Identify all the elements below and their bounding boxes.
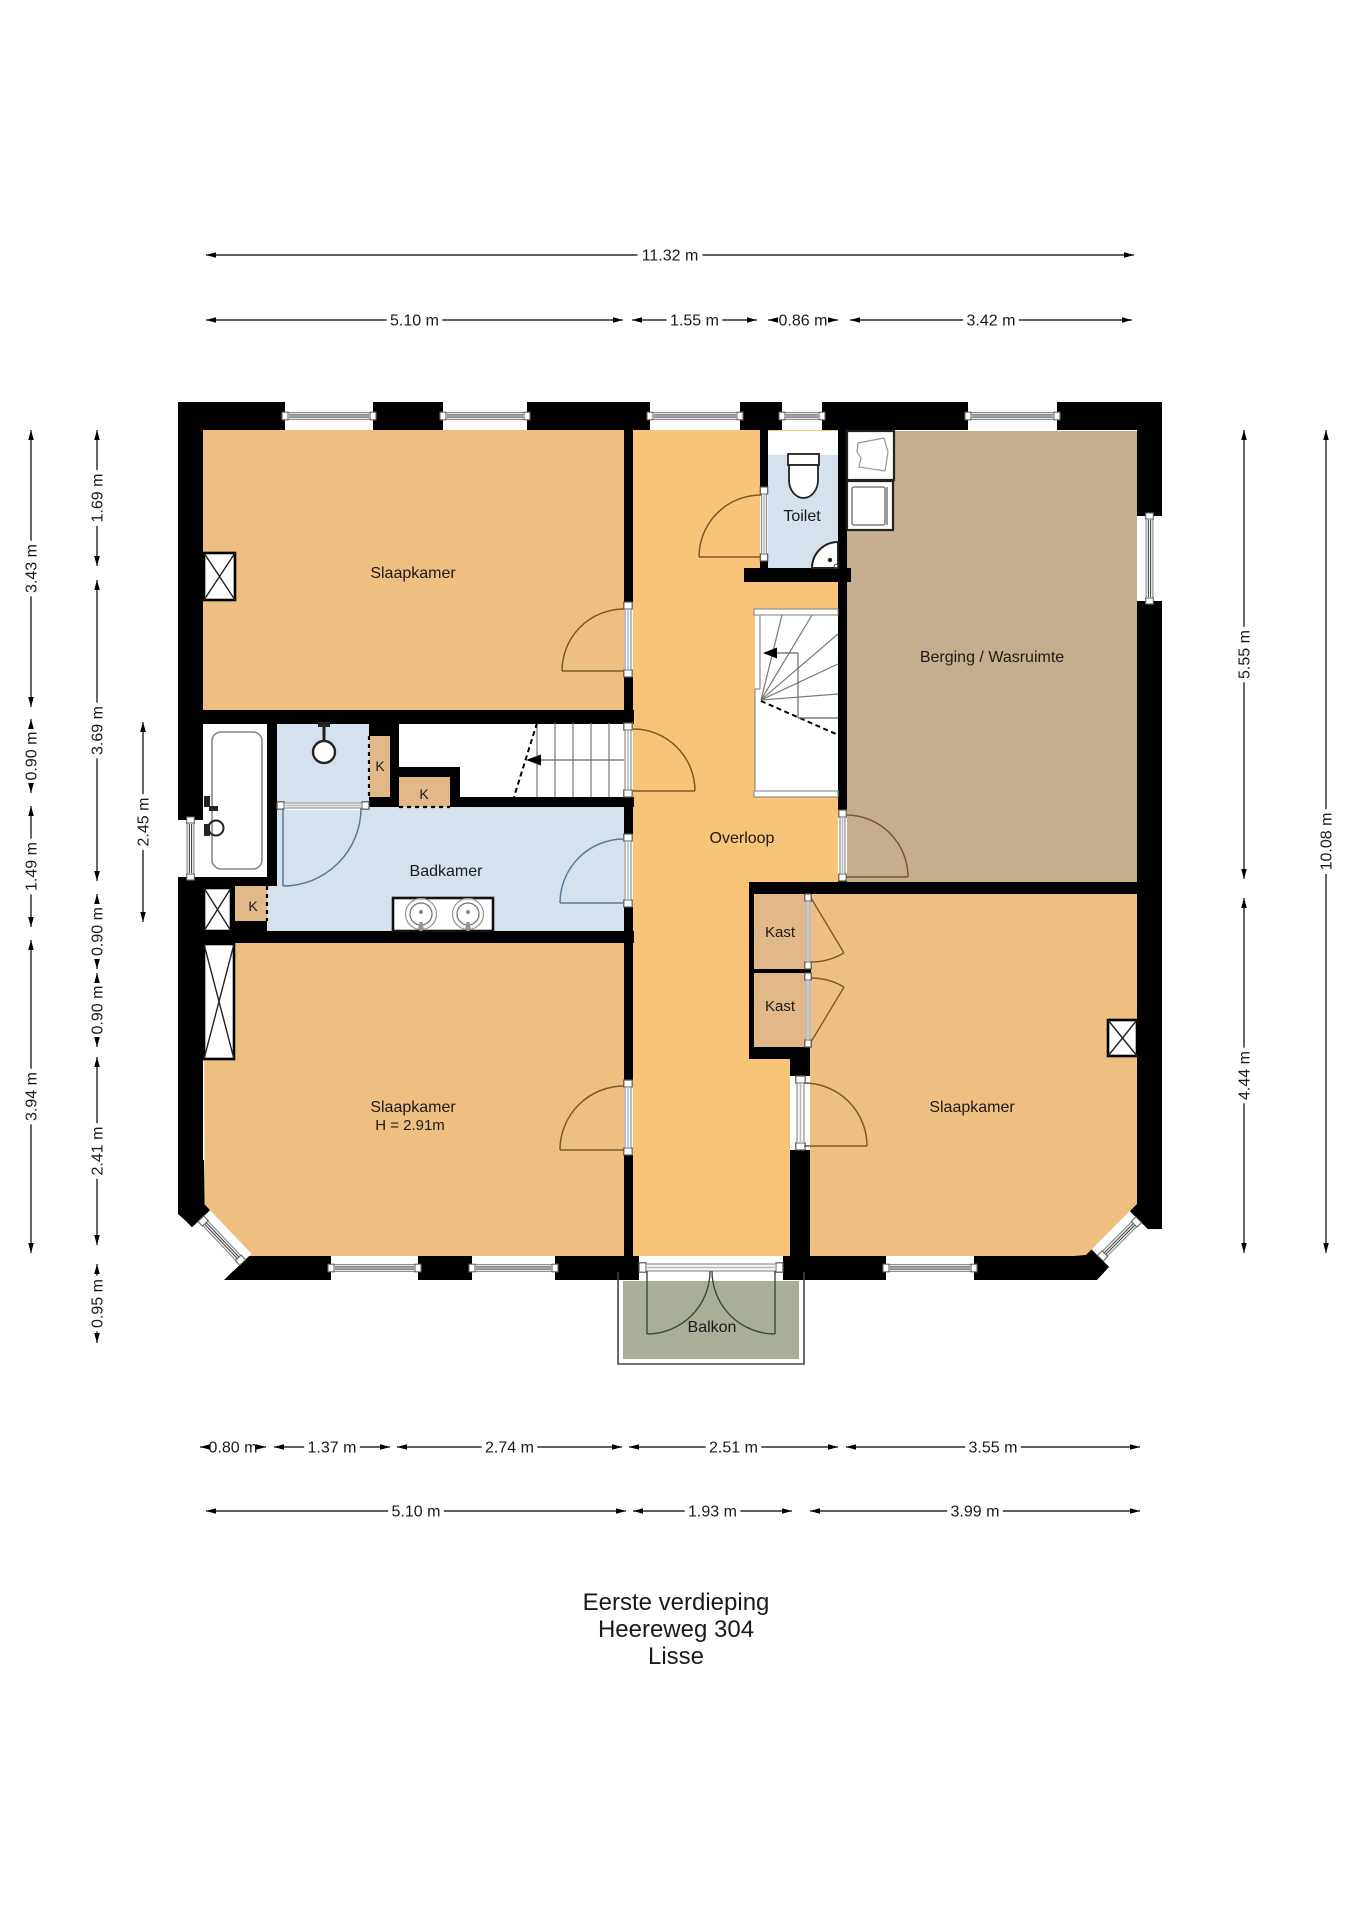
- svg-text:H = 2.91m: H = 2.91m: [375, 1117, 445, 1134]
- svg-text:2.74 m: 2.74 m: [485, 1440, 534, 1457]
- svg-text:Eerste verdieping: Eerste verdieping: [583, 1589, 770, 1616]
- svg-text:Lisse: Lisse: [648, 1643, 704, 1670]
- svg-text:3.43 m: 3.43 m: [24, 544, 41, 593]
- svg-text:2.41 m: 2.41 m: [90, 1127, 107, 1176]
- svg-text:5.10 m: 5.10 m: [390, 313, 439, 330]
- svg-text:K: K: [419, 786, 429, 802]
- svg-text:Balkon: Balkon: [688, 1319, 737, 1336]
- svg-text:0.80 m: 0.80 m: [209, 1440, 258, 1457]
- svg-text:Slaapkamer: Slaapkamer: [929, 1099, 1015, 1116]
- svg-text:1.93 m: 1.93 m: [688, 1504, 737, 1521]
- svg-text:Badkamer: Badkamer: [410, 863, 484, 880]
- svg-text:0.90 m: 0.90 m: [24, 732, 41, 781]
- svg-text:10.08 m: 10.08 m: [1319, 813, 1336, 871]
- svg-text:2.51 m: 2.51 m: [709, 1440, 758, 1457]
- svg-text:3.42 m: 3.42 m: [967, 313, 1016, 330]
- svg-text:5.10 m: 5.10 m: [392, 1504, 441, 1521]
- svg-text:4.44 m: 4.44 m: [1237, 1051, 1254, 1100]
- svg-text:11.32 m: 11.32 m: [642, 248, 699, 265]
- svg-text:Berging / Wasruimte: Berging / Wasruimte: [920, 649, 1064, 666]
- svg-text:0.90 m: 0.90 m: [90, 907, 107, 956]
- svg-text:K: K: [375, 758, 385, 774]
- svg-text:Toilet: Toilet: [783, 508, 821, 525]
- svg-text:0.90 m: 0.90 m: [90, 986, 107, 1035]
- svg-text:1.55 m: 1.55 m: [670, 313, 719, 330]
- svg-text:3.94 m: 3.94 m: [24, 1072, 41, 1121]
- svg-text:0.95 m: 0.95 m: [90, 1279, 107, 1328]
- svg-text:3.55 m: 3.55 m: [969, 1440, 1018, 1457]
- svg-text:0.86 m: 0.86 m: [779, 313, 828, 330]
- svg-text:3.99 m: 3.99 m: [951, 1504, 1000, 1521]
- svg-text:Slaapkamer: Slaapkamer: [370, 1099, 456, 1116]
- svg-text:5.55 m: 5.55 m: [1237, 630, 1254, 679]
- svg-text:1.37 m: 1.37 m: [308, 1440, 357, 1457]
- svg-text:Slaapkamer: Slaapkamer: [370, 565, 456, 582]
- svg-text:1.49 m: 1.49 m: [24, 842, 41, 891]
- svg-text:Overloop: Overloop: [710, 830, 775, 847]
- svg-text:Kast: Kast: [765, 924, 796, 941]
- svg-text:2.45 m: 2.45 m: [136, 798, 153, 847]
- svg-text:K: K: [248, 898, 258, 914]
- svg-text:3.69 m: 3.69 m: [90, 706, 107, 755]
- svg-text:Heereweg 304: Heereweg 304: [598, 1616, 754, 1643]
- svg-text:1.69 m: 1.69 m: [90, 474, 107, 523]
- svg-text:Kast: Kast: [765, 998, 796, 1015]
